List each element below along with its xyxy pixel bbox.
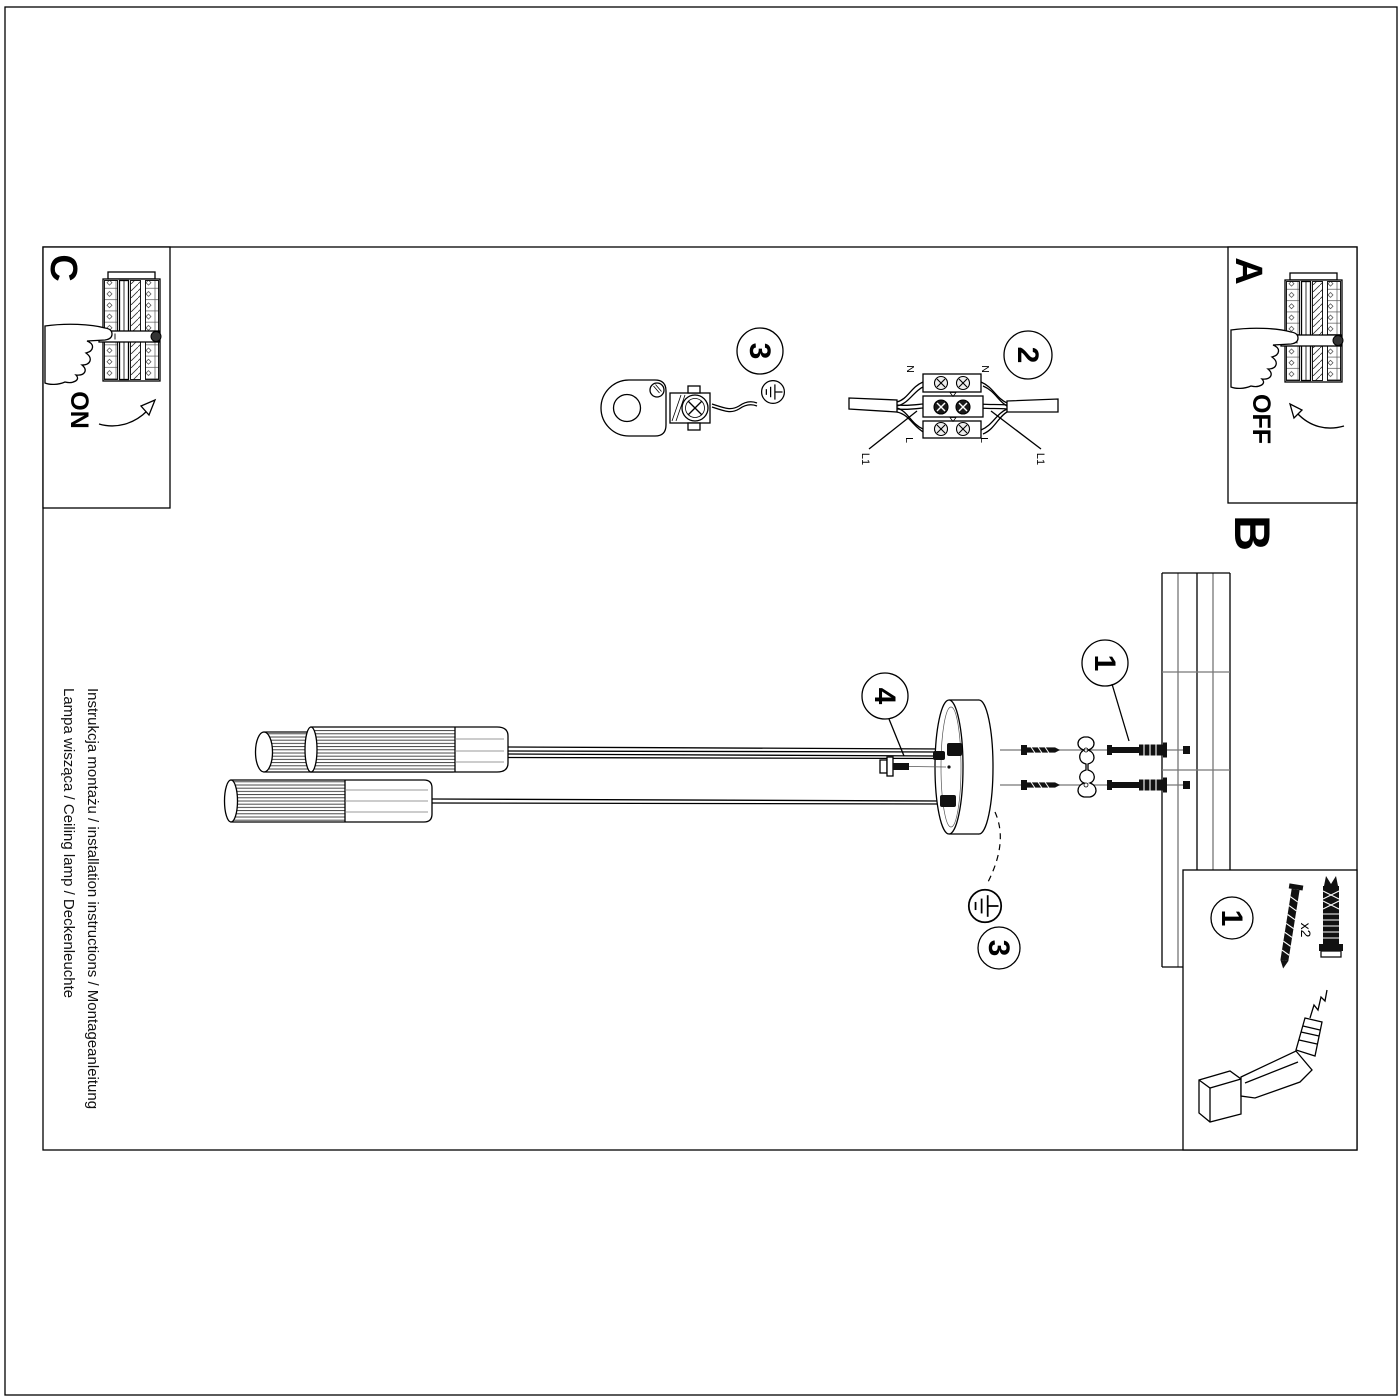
anchor-qty-label: x2 (1298, 923, 1314, 938)
wire-label-l-right: L (978, 437, 990, 443)
lamp-shade-top (305, 727, 508, 772)
off-label: OFF (1247, 394, 1275, 444)
callout-3: 3 (982, 940, 1015, 957)
callout-3: 3 (743, 343, 776, 360)
wire-label-n-left: N (904, 365, 916, 373)
wire-label-l-left: L (903, 437, 915, 443)
supply-cable (849, 398, 897, 412)
instruction-sheet: C ON A OFF B (0, 0, 1400, 1400)
lamp-shade-bottom (225, 780, 433, 822)
step-b-label: B (1224, 515, 1280, 551)
instruction-drawing: C ON A OFF B (0, 0, 1400, 1400)
cable-gland-figure: 3 (601, 328, 784, 436)
earth-lead-line (988, 812, 1000, 882)
footer-line-1: Instrukcja montażu / installation instru… (84, 688, 101, 1109)
step-a-label: A (1227, 257, 1269, 284)
callout-1: 1 (1088, 655, 1121, 672)
step-c-label: C (42, 254, 84, 281)
rod-connector (933, 751, 945, 760)
page-border (5, 7, 1397, 1395)
rod-connector (947, 743, 962, 756)
lamp-assembly-figure: 1 (225, 573, 1231, 969)
panel-step-c: C ON (42, 247, 170, 508)
content-frame (43, 247, 1357, 1150)
callout-2: 2 (1011, 347, 1044, 364)
wire-label-l1-left: L1 (859, 453, 871, 465)
suspension-rods (432, 747, 946, 804)
parts-inset: 1 x2 (1183, 870, 1357, 1150)
footer-line-2: Lampa wisząca / Ceiling lamp / Deckenleu… (60, 688, 77, 998)
lamp-cable (1007, 399, 1058, 412)
wall-anchor-icon (1107, 778, 1167, 793)
terminal-l (923, 421, 981, 438)
mounting-bracket (1078, 737, 1096, 797)
breaker-panel-icon (1285, 273, 1342, 382)
ground-symbol-icon (762, 381, 785, 404)
callout-4: 4 (868, 688, 901, 705)
mounting-screw-icon (1021, 745, 1060, 755)
wire-label-n-right: N (979, 365, 991, 373)
on-label: ON (65, 391, 93, 429)
terminal-block-figure: 2 N N L L L1 L1 (849, 331, 1058, 465)
wire-label-l1-right: L1 (1034, 453, 1046, 465)
callout-1: 1 (1215, 910, 1248, 927)
terminal-earth (923, 396, 983, 417)
ground-symbol-icon (969, 890, 1001, 922)
mounting-screw-icon (1021, 780, 1060, 790)
panel-step-a: A OFF (1227, 247, 1357, 503)
wall-anchor-icon (1107, 743, 1167, 758)
rod-connector (940, 795, 956, 807)
terminal-n (923, 374, 981, 392)
breaker-panel-icon (103, 272, 160, 381)
